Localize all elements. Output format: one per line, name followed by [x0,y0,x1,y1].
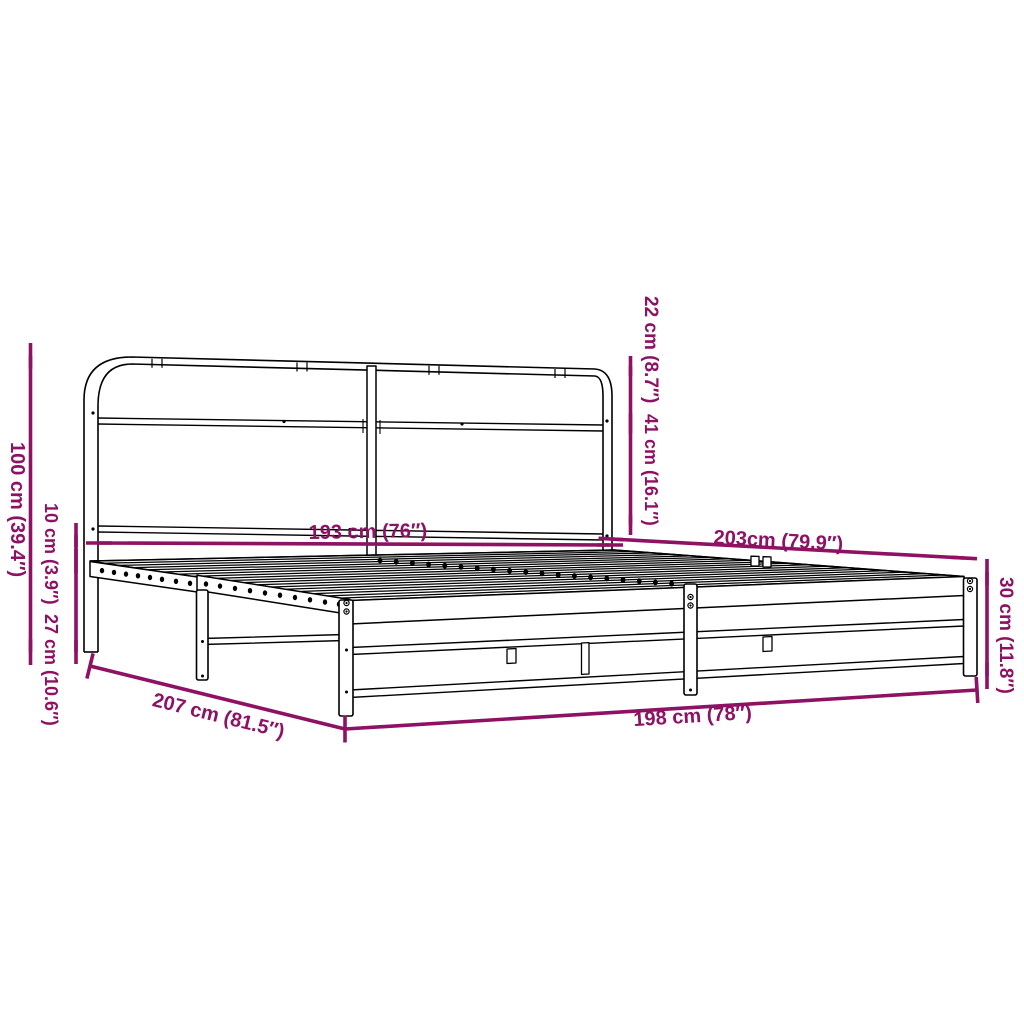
svg-text:100 cm (39.4″): 100 cm (39.4″) [6,442,28,577]
svg-text:193 cm (76″): 193 cm (76″) [308,520,427,544]
svg-text:10 cm (3.9″): 10 cm (3.9″) [41,503,61,605]
svg-text:30 cm (11.8″): 30 cm (11.8″) [995,577,1016,694]
svg-text:41 cm (16.1″): 41 cm (16.1″) [641,414,661,526]
svg-text:22 cm (8.7″): 22 cm (8.7″) [640,296,661,403]
svg-text:27 cm (10.6″): 27 cm (10.6″) [41,614,61,726]
